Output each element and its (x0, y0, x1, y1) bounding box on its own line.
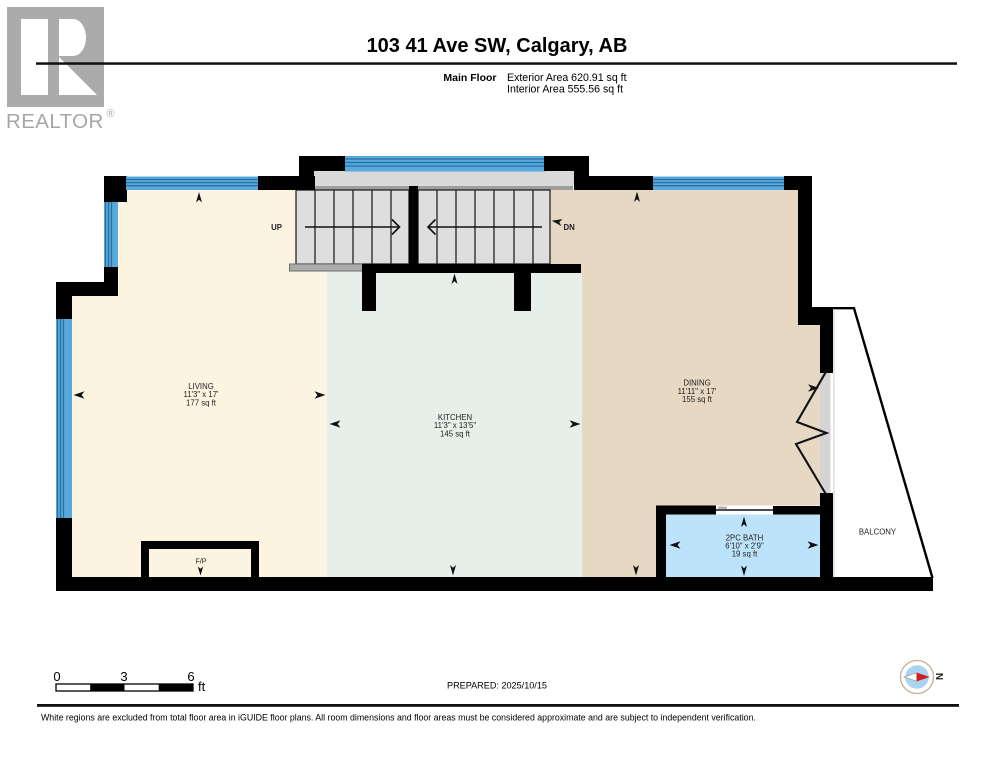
svg-text:0: 0 (53, 669, 60, 684)
svg-text:REALTOR: REALTOR (6, 110, 104, 133)
svg-text:N: N (933, 673, 944, 680)
svg-text:155 sq ft: 155 sq ft (682, 395, 713, 404)
svg-text:DN: DN (564, 223, 576, 232)
svg-text:3: 3 (120, 669, 127, 684)
svg-text:6: 6 (187, 669, 194, 684)
svg-text:Interior Area 555.56 sq ft: Interior Area 555.56 sq ft (507, 83, 623, 95)
svg-text:177 sq ft: 177 sq ft (186, 398, 217, 407)
svg-text:145 sq ft: 145 sq ft (440, 429, 471, 438)
svg-text:BALCONY: BALCONY (859, 528, 897, 537)
svg-text:Main Floor: Main Floor (443, 72, 496, 84)
svg-text:Exterior Area 620.91 sq ft: Exterior Area 620.91 sq ft (507, 72, 627, 84)
svg-text:UP: UP (271, 223, 282, 232)
svg-text:White regions are excluded fro: White regions are excluded from total fl… (41, 713, 756, 723)
svg-text:19 sq ft: 19 sq ft (732, 550, 758, 559)
svg-text:F/P: F/P (196, 559, 207, 566)
svg-text:103 41 Ave SW, Calgary, AB: 103 41 Ave SW, Calgary, AB (367, 35, 628, 57)
svg-text:®: ® (107, 108, 115, 120)
svg-text:PREPARED: 2025/10/15: PREPARED: 2025/10/15 (447, 681, 547, 691)
svg-text:ft: ft (198, 679, 206, 694)
